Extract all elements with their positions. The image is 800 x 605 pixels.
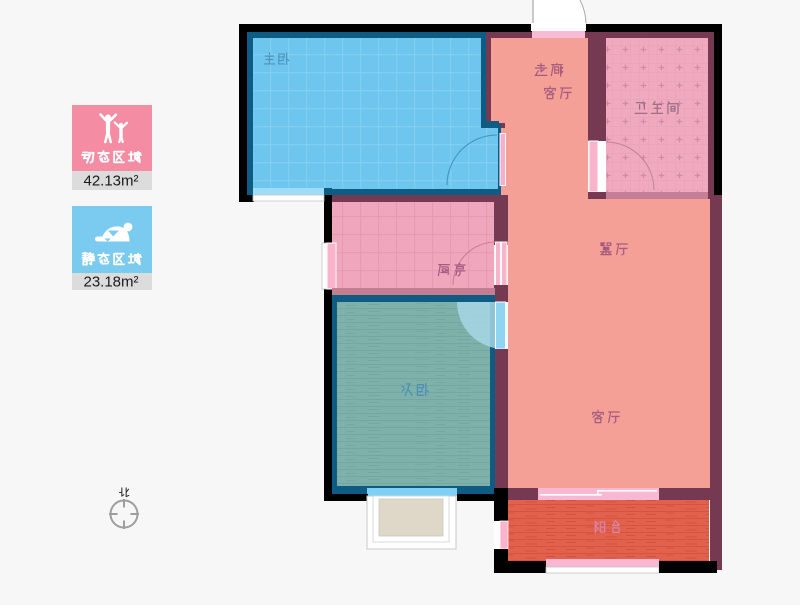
svg-text:42.13m²: 42.13m² bbox=[83, 173, 138, 190]
svg-text:23.18m²: 23.18m² bbox=[83, 274, 138, 291]
